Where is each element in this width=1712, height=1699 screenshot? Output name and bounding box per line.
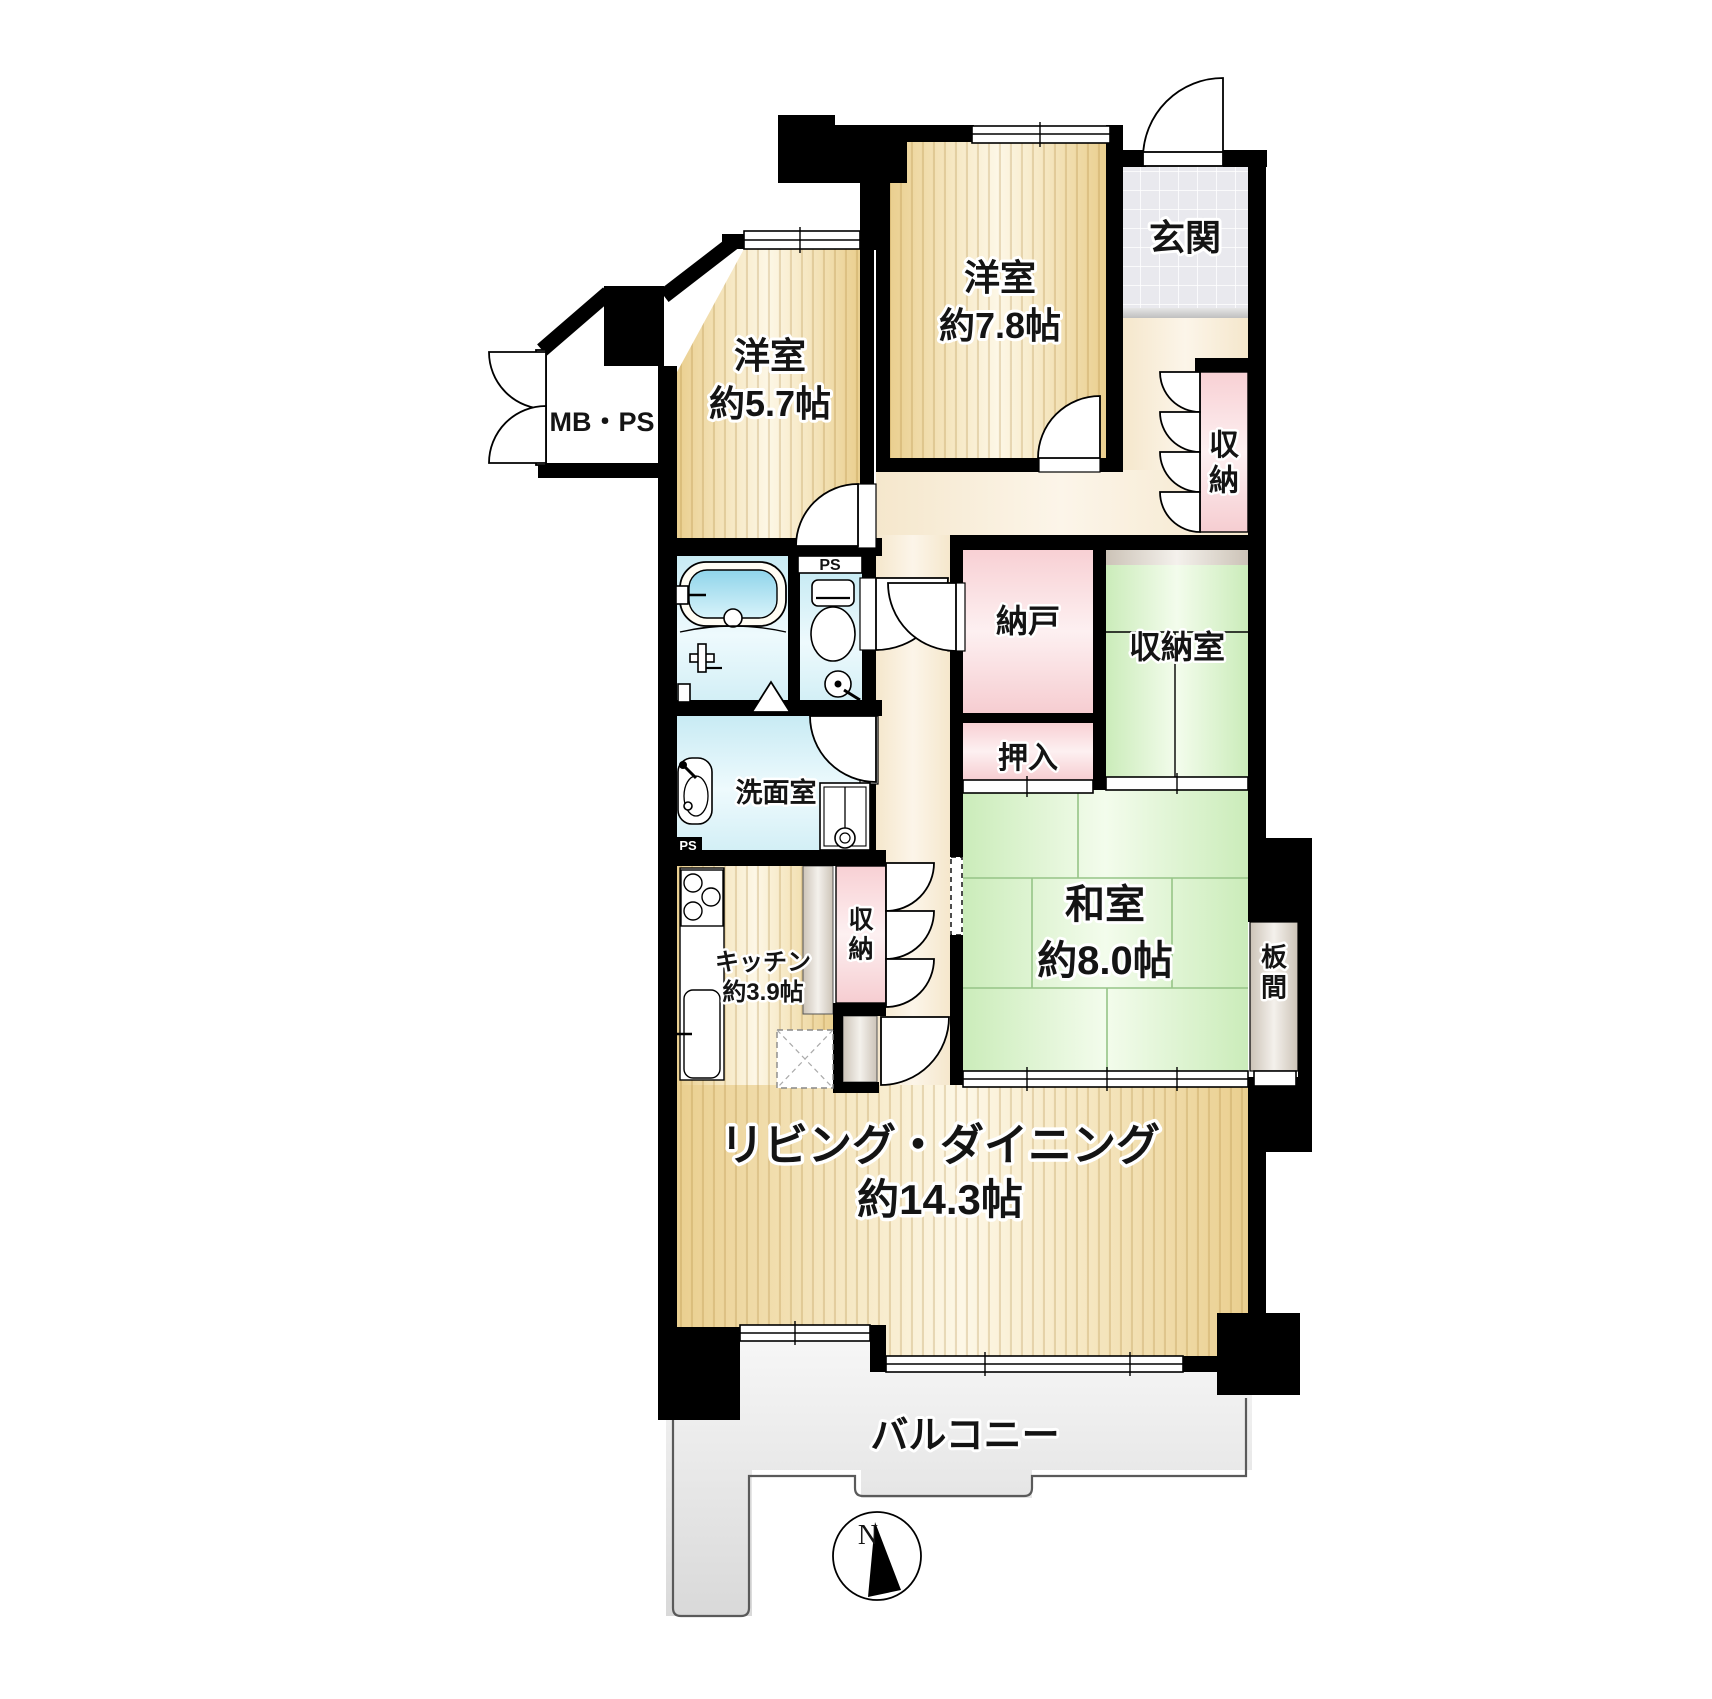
nando-label: 納戸 <box>996 603 1060 639</box>
window-itanoma <box>1254 1071 1296 1086</box>
fusuma-washitsu-living <box>963 1067 1248 1091</box>
mbps-label: MB・PS <box>549 407 654 437</box>
kitchen-size: 約3.9帖 <box>722 978 803 1006</box>
living-dining-label: リビング・ダイニング <box>720 1121 1160 1170</box>
shunoshitsu-label: 収納室 <box>1129 629 1225 665</box>
window-western57 <box>744 227 860 253</box>
room-washitsu <box>963 790 1248 1071</box>
western57-label: 洋室 <box>734 335 806 376</box>
washitsu-size: 約8.0帖 <box>1037 939 1173 983</box>
refrigerator-space <box>777 1030 833 1088</box>
floor-plan-page: バルコニー <box>0 0 1712 1699</box>
kitchen-side-cabinet <box>843 1016 877 1082</box>
toilet-ps-label: PS <box>819 557 841 574</box>
western57-size: 約5.7帖 <box>709 383 831 424</box>
folding-doors-kitchen-closet <box>886 863 934 1007</box>
washbasin <box>678 758 712 824</box>
kitchen-sink <box>677 990 720 1078</box>
compass: N <box>833 1512 921 1600</box>
washing-machine <box>820 783 870 850</box>
balcony: バルコニー <box>666 1335 1252 1616</box>
sliding-panel-washitsu <box>951 857 962 935</box>
room-kitchen-closet <box>836 866 886 1003</box>
balcony-label: バルコニー <box>870 1415 1059 1457</box>
western78-label: 洋室 <box>964 257 1036 298</box>
window-living-left <box>740 1321 870 1345</box>
kitchen-counter-cabinet <box>803 866 833 1014</box>
window-western78 <box>972 122 1110 147</box>
genkan-label: 玄関 <box>1149 217 1221 258</box>
senmenshitsu-label: 洗面室 <box>736 777 817 808</box>
living-dining-size: 約14.3帖 <box>857 1176 1023 1223</box>
washitsu-label: 和室 <box>1065 883 1145 927</box>
floor-plan-canvas: バルコニー <box>0 0 1712 1699</box>
compass-north-label: N <box>858 1520 878 1551</box>
kitchen-label: キッチン <box>715 949 811 976</box>
genkan-step <box>1123 308 1248 318</box>
western78-size: 約7.8帖 <box>939 305 1061 346</box>
entrance-door <box>1143 78 1223 166</box>
mbps-doors <box>489 350 546 465</box>
window-living-right <box>886 1352 1183 1376</box>
stove <box>681 870 723 926</box>
itanoma-label: 板間 <box>1261 942 1287 1003</box>
kitchen-closet-label: 収納 <box>848 906 874 964</box>
kitchen-ps-label: PS <box>679 838 697 853</box>
oshiire-label: 押入 <box>998 742 1058 775</box>
